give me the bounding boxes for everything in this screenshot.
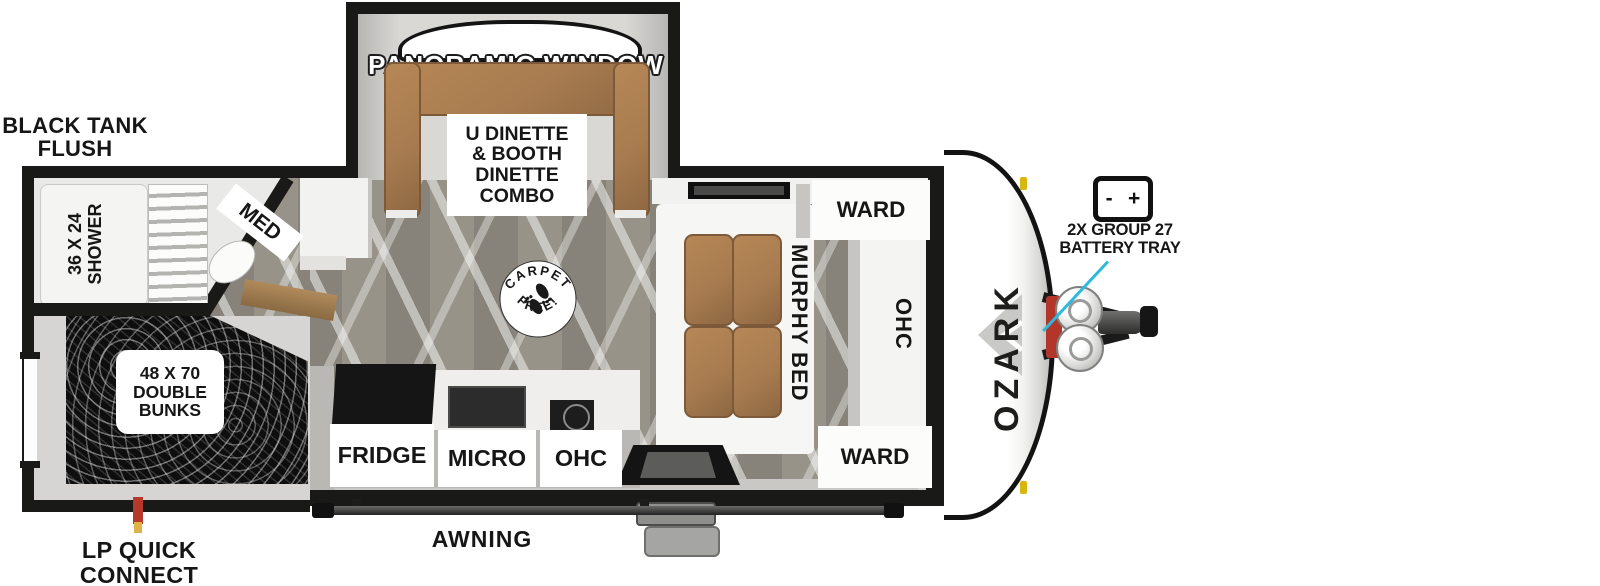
- murphy-bed-cushion-1: [684, 234, 734, 326]
- double-bunks-label: 48 X 70 DOUBLE BUNKS: [116, 350, 224, 434]
- entry-step: [644, 526, 720, 557]
- lp-connector-icon: [133, 497, 143, 524]
- bedroom-ohc-face: [848, 238, 860, 426]
- micro-label: MICRO: [438, 430, 536, 487]
- kitchen-ohc-label-text: OHC: [555, 446, 607, 471]
- pantry-cabinet: [300, 178, 372, 258]
- dinette-label-text: U DINETTE & BOOTH DINETTE COMBO: [466, 124, 569, 207]
- brand-logo-text: OZARK: [988, 281, 1027, 432]
- fridge-label: FRIDGE: [330, 424, 434, 487]
- fridge-label-text: FRIDGE: [338, 443, 427, 468]
- murphy-bed-cushion-4: [732, 326, 782, 418]
- double-bunks-label-text: 48 X 70 DOUBLE BUNKS: [133, 364, 207, 420]
- carpet-free-badge: CARPET FREE!: [499, 260, 577, 338]
- bath-bunk-divider-wall: [28, 303, 210, 316]
- ward-top: WARD: [812, 180, 930, 240]
- awning-bar: [316, 506, 902, 515]
- dinette-back-cushion: [384, 62, 650, 116]
- dinette-label: U DINETTE & BOOTH DINETTE COMBO: [447, 114, 587, 216]
- ward-top-face: [796, 184, 810, 238]
- black-tank-flush-label: BLACK TANK FLUSH: [0, 114, 150, 161]
- bunk-window-icon: [24, 356, 37, 464]
- murphy-bed-cushion-2: [732, 234, 782, 326]
- murphy-bed-label: MURPHY BED: [786, 244, 812, 402]
- bedroom-ohc-label: OHC: [890, 298, 916, 350]
- battery-minus-sign: -: [1106, 187, 1113, 211]
- hitch-coupler: [1098, 311, 1144, 334]
- battery-tray-label: 2X GROUP 27 BATTERY TRAY: [1056, 221, 1184, 258]
- awning-end-cap-right: [884, 503, 904, 518]
- awning-label: AWNING: [402, 527, 562, 551]
- pantry-cabinet-base: [300, 256, 346, 270]
- bunk-window-frame-bottom: [20, 461, 40, 468]
- dinette-right-cushion-cap: [615, 210, 646, 218]
- microwave-icon: [448, 386, 526, 428]
- micro-label-text: MICRO: [448, 446, 526, 471]
- marker-light-bottom: [1020, 481, 1027, 494]
- battery-plus-sign: +: [1128, 187, 1140, 211]
- dinette-right-cushion: [613, 62, 650, 218]
- headboard-window-glass: [694, 186, 784, 195]
- entry-door-panel: [640, 452, 716, 478]
- floorplan-canvas: 36 X 24 SHOWER MED 48 X 70 DOUBLE BUNKS …: [0, 0, 1600, 586]
- ward-bottom: WARD: [818, 426, 932, 488]
- battery-icon: - +: [1093, 176, 1153, 222]
- awning-end-cap-left: [312, 503, 334, 518]
- kitchen-ohc-label: OHC: [540, 430, 622, 487]
- lp-connector-tip: [134, 522, 142, 533]
- propane-tank-2-ring: [1069, 337, 1093, 361]
- ward-top-label: WARD: [837, 198, 906, 222]
- linen-shelves: [148, 184, 208, 306]
- hitch-coupler-knob: [1140, 306, 1158, 337]
- bunk-window-frame-top: [20, 352, 40, 359]
- fridge-top: [332, 364, 436, 426]
- ward-bottom-label: WARD: [841, 445, 910, 469]
- marker-light-top: [1020, 177, 1027, 190]
- shower-label-text: 36 X 24 SHOWER: [66, 204, 106, 285]
- murphy-bed-cushion-3: [684, 326, 734, 418]
- lp-quick-connect-label: LP QUICK CONNECT: [49, 538, 229, 586]
- bottom-wall: [298, 490, 946, 506]
- cooktop-burner-icon: [563, 404, 590, 431]
- dinette-left-cushion-cap: [386, 210, 417, 218]
- shower-label: 36 X 24 SHOWER: [38, 194, 134, 294]
- dinette-left-cushion: [384, 62, 421, 218]
